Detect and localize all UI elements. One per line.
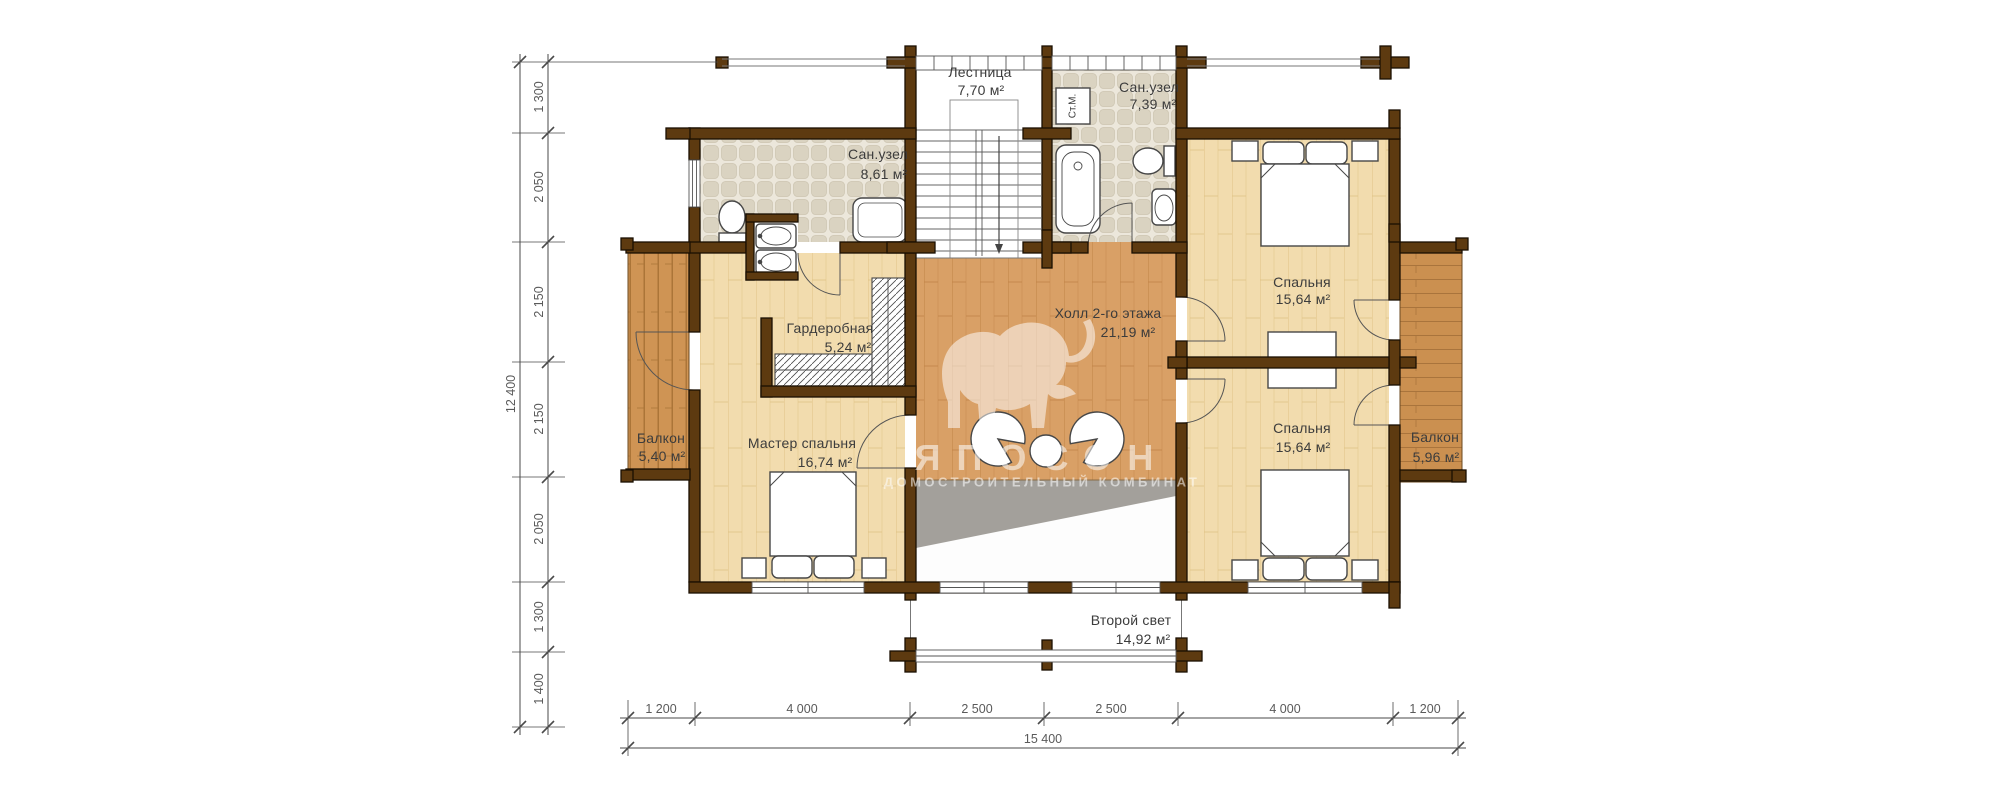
- dim-bottom-total: 15 400: [1024, 732, 1062, 746]
- dim-bottom-5: 1 200: [1409, 702, 1440, 716]
- pillow: [1306, 558, 1347, 580]
- room-area-bedroom-top: 15,64 м²: [1276, 291, 1331, 307]
- room-area-balcony-left: 5,40 м²: [639, 448, 686, 464]
- dim-bottom-4: 4 000: [1269, 702, 1300, 716]
- dim-left-5: 1 300: [532, 601, 546, 632]
- room-area-staircase: 7,70 м²: [958, 82, 1005, 98]
- dim-left-0: 1 300: [532, 81, 546, 112]
- nightstand: [1352, 141, 1378, 161]
- pillow: [1263, 142, 1304, 164]
- nightstand: [1232, 560, 1258, 580]
- room-area-hall: 21,19 м²: [1101, 324, 1156, 340]
- toilet-top-bathroom: [1133, 148, 1163, 174]
- room-label-bedroom-bottom: Спальня: [1273, 420, 1331, 436]
- nightstand: [1352, 560, 1378, 580]
- watermark-title: ЯПОСОН: [915, 437, 1170, 479]
- dim-left-6: 1 400: [532, 673, 546, 704]
- room-area-bathroom-top: 7,39 м²: [1130, 96, 1177, 112]
- room-area-master: 16,74 м²: [798, 454, 853, 470]
- bed-top-bedroom: [1261, 164, 1349, 246]
- pillow: [772, 556, 812, 578]
- room-area-bedroom-bottom: 15,64 м²: [1276, 439, 1331, 455]
- room-label-wardrobe: Гардеробная: [787, 320, 874, 336]
- room-label-hall: Холл 2-го этажа: [1055, 305, 1162, 321]
- room-area-second-light: 14,92 м²: [1116, 631, 1171, 647]
- nightstand: [862, 558, 886, 578]
- dim-left-3: 2 150: [532, 403, 546, 434]
- dim-left-2: 2 150: [532, 286, 546, 317]
- pillow: [814, 556, 854, 578]
- toilet-tank: [719, 233, 746, 242]
- room-label-staircase: Лестница: [948, 64, 1011, 80]
- room-label-bedroom-top: Спальня: [1273, 274, 1331, 290]
- toilet-left-bathroom: [719, 201, 745, 233]
- nightstand: [1232, 141, 1258, 161]
- toilet-tank-2: [1164, 146, 1175, 176]
- dim-bottom-1: 4 000: [786, 702, 817, 716]
- floor-plan-page: ЯПОСОН ДОМОСТРОИТЕЛЬНЫЙ КОМБИНАТ Лестниц…: [0, 0, 2000, 800]
- dim-bottom-2: 2 500: [961, 702, 992, 716]
- bed-bottom-bedroom: [1261, 470, 1349, 556]
- dim-left-total: 12 400: [504, 375, 518, 413]
- room-area-balcony-right: 5,96 м²: [1413, 449, 1460, 465]
- washing-machine-label: Ст.М.: [1068, 94, 1079, 119]
- dim-bottom-3: 2 500: [1095, 702, 1126, 716]
- room-area-bathroom-left: 8,61 м²: [861, 166, 908, 182]
- pillow: [1263, 558, 1304, 580]
- dim-left-1: 2 050: [532, 171, 546, 202]
- watermark-subtitle: ДОМОСТРОИТЕЛЬНЫЙ КОМБИНАТ: [884, 475, 1201, 490]
- nightstand: [742, 558, 766, 578]
- dim-bottom-0: 1 200: [645, 702, 676, 716]
- room-label-balcony-left: Балкон: [637, 430, 685, 446]
- room-area-wardrobe: 5,24 м²: [825, 339, 872, 355]
- room-label-balcony-right: Балкон: [1411, 429, 1459, 445]
- room-label-second-light: Второй свет: [1091, 612, 1171, 628]
- room-label-bathroom-left: Сан.узел: [848, 146, 908, 162]
- floor-plan-drawing: [0, 0, 2000, 800]
- room-label-bathroom-top: Сан.узел: [1119, 79, 1179, 95]
- closet-hatch-right: [872, 278, 905, 386]
- pillow: [1306, 142, 1347, 164]
- room-label-master: Мастер спальня: [748, 435, 856, 451]
- bed-master: [770, 472, 856, 556]
- dim-left-4: 2 050: [532, 513, 546, 544]
